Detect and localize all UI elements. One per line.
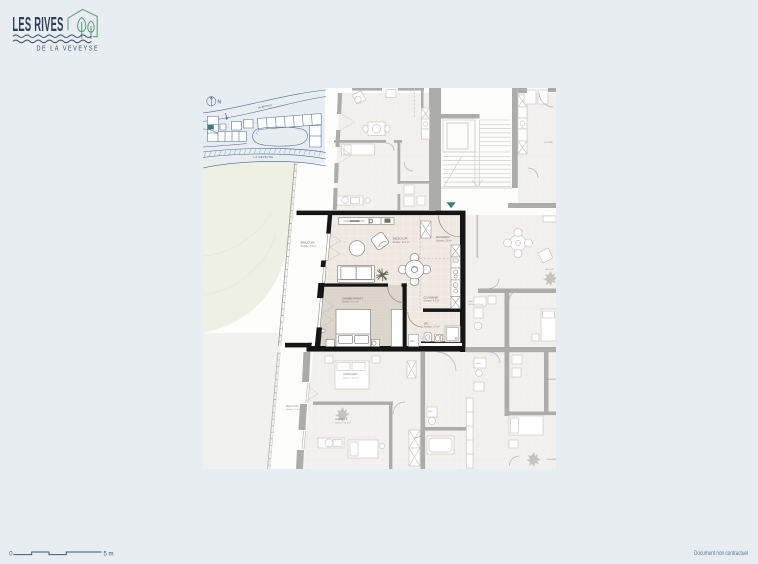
svg-text:SEJOUR: SEJOUR — [545, 269, 554, 271]
svg-text:CUISINE: CUISINE — [424, 295, 439, 299]
svg-text:Surface: 3.8 m²: Surface: 3.8 m² — [436, 239, 452, 242]
svg-text:SEJOUR: SEJOUR — [393, 237, 408, 241]
svg-text:CHAMBRE PARENTS: CHAMBRE PARENTS — [342, 296, 363, 300]
svg-text:LA VEVEYSE: LA VEVEYSE — [254, 155, 274, 159]
svg-text:DEGAGEMENT: DEGAGEMENT — [436, 235, 450, 239]
svg-text:Surface: 5.2 m²: Surface: 5.2 m² — [301, 245, 317, 248]
svg-text:N: N — [218, 100, 222, 106]
svg-text:CHAMBRE: CHAMBRE — [545, 378, 556, 381]
svg-text:SDB: SDB — [476, 363, 481, 365]
svg-text:LES RIVES: LES RIVES — [12, 14, 63, 36]
svg-text:SDB: SDB — [468, 301, 473, 303]
svg-text:CUISINE: CUISINE — [544, 142, 553, 144]
svg-text:CHAMBRE: CHAMBRE — [546, 458, 556, 461]
svg-text:0: 0 — [9, 551, 13, 557]
svg-text:Surface: 12.5 m²: Surface: 12.5 m² — [335, 421, 351, 424]
svg-text:SDB: SDB — [428, 411, 433, 413]
svg-text:DE LA VEVEYSE: DE LA VEVEYSE — [37, 45, 100, 53]
svg-text:Surface: 4.3 m²: Surface: 4.3 m² — [424, 300, 440, 303]
svg-text:Surface: 15.9 m²: Surface: 15.9 m² — [342, 301, 359, 304]
svg-text:M.L: M.L — [411, 340, 416, 343]
svg-text:Document non contractuel: Document non contractuel — [694, 550, 748, 557]
svg-text:Surface: 3.9 m²: Surface: 3.9 m² — [468, 303, 483, 306]
svg-text:5 m: 5 m — [104, 551, 114, 557]
svg-text:CHAMBRE PARENTS: CHAMBRE PARENTS — [343, 372, 358, 376]
svg-text:CHAMBRE 2: CHAMBRE 2 — [335, 417, 347, 421]
svg-text:Surface: 13.5 m²: Surface: 13.5 m² — [343, 376, 359, 379]
svg-text:Surface: 31.4 m²: Surface: 31.4 m² — [393, 241, 410, 244]
svg-text:BALCON: BALCON — [301, 241, 315, 245]
svg-text:Surface: 7.3 m²: Surface: 7.3 m² — [286, 408, 301, 411]
svg-text:Surface: 3.4 m²: Surface: 3.4 m² — [424, 326, 440, 329]
svg-text:WC: WC — [424, 321, 429, 325]
svg-text:BALCON: BALCON — [286, 404, 298, 408]
